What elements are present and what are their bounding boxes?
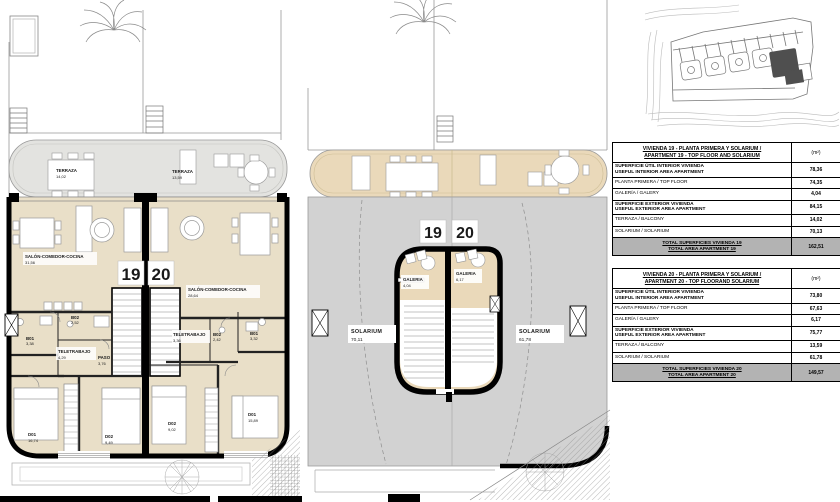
party-wall — [142, 194, 149, 458]
skylight-x-box — [5, 314, 18, 336]
svg-text:GALERIA: GALERIA — [456, 271, 477, 276]
svg-text:15,89: 15,89 — [248, 418, 259, 423]
total-label-line2: TOTAL AREA APARTMENT 19 — [668, 247, 736, 253]
room-label-terraza-19: TERRAZA — [56, 168, 78, 173]
svg-text:SOLARIUM: SOLARIUM — [351, 329, 382, 335]
area-value: 73,80 — [792, 289, 840, 303]
lower-terrace-railing — [12, 463, 250, 485]
area-table-vivienda-19: VIVIENDA 19 - PLANTA PRIMERA Y SOLARIUM … — [612, 142, 840, 256]
table-header: VIVIENDA 19 - PLANTA PRIMERA Y SOLARIUM … — [613, 143, 840, 162]
table-row: TERRAZA / BALCONY 14,02 — [613, 214, 840, 226]
svg-text:3,38: 3,38 — [26, 341, 35, 346]
plan-tree-circle — [165, 460, 199, 494]
area-value: 84,15 — [792, 201, 840, 215]
table-total-row: TOTAL SUPERFICIES VIVIENDA 20 TOTAL AREA… — [613, 363, 840, 381]
apartment-number-19: 19 — [122, 265, 141, 284]
area-value: 61,78 — [792, 353, 840, 364]
svg-text:28,64: 28,64 — [188, 293, 199, 298]
table-row: SUPERFICIE EXTERIOR VIVIENDAUSEFUL EXTER… — [613, 326, 840, 341]
area-value: 74,35 — [792, 178, 840, 189]
garden-stairs — [10, 106, 163, 133]
table-row: PLANTA PRIMERA / TOP FLOOR 74,35 — [613, 177, 840, 189]
svg-text:4,04: 4,04 — [403, 283, 412, 288]
room-area-terraza-19: 14,02 — [56, 174, 67, 179]
svg-text:9,02: 9,02 — [168, 427, 177, 432]
architectural-sheet: TERRAZA 14,02 TERRAZA 13,59 — [0, 0, 840, 502]
table-row: SUPERFICIE ÚTIL INTERIOR VIVIENDAUSEFUL … — [613, 162, 840, 177]
svg-text:16,74: 16,74 — [28, 438, 39, 443]
svg-text:TELETRABAJO: TELETRABAJO — [58, 349, 91, 354]
area-value: 6,17 — [792, 315, 840, 326]
plot-stairs — [437, 116, 453, 142]
table-row: SOLARIUM / SOLARIUM 70,13 — [613, 226, 840, 238]
total-area-value: 149,57 — [792, 364, 840, 381]
svg-text:2,42: 2,42 — [213, 337, 222, 342]
svg-text:D02: D02 — [105, 434, 114, 439]
svg-text:3,32: 3,32 — [250, 336, 259, 341]
svg-text:70,11: 70,11 — [351, 337, 363, 343]
svg-text:TELETRABAJO: TELETRABAJO — [173, 332, 206, 337]
table-row: GALERÍA / GALERY 6,17 — [613, 314, 840, 326]
table-title-line2: APARTMENT 20 - TOP FLOORAND SOLARIUM — [645, 279, 759, 285]
total-area-value: 162,51 — [792, 238, 840, 255]
terrace-band: TERRAZA 14,02 TERRAZA 13,59 — [9, 140, 287, 197]
lower-railing — [315, 470, 495, 492]
unit-header: (m²) — [792, 269, 840, 288]
area-value: 67,63 — [792, 304, 840, 315]
svg-text:D01: D01 — [28, 432, 37, 437]
table-row: SOLARIUM / SOLARIUM 61,78 — [613, 352, 840, 364]
svg-text:PASO: PASO — [98, 355, 111, 360]
svg-text:SALÓN-COMEDOR-COCINA: SALÓN-COMEDOR-COCINA — [188, 287, 247, 292]
svg-text:9,49: 9,49 — [105, 440, 114, 445]
area-value: 70,13 — [792, 227, 840, 238]
svg-text:4,29: 4,29 — [58, 355, 67, 360]
table-row: TERRAZA / BALCONY 13,59 — [613, 340, 840, 352]
plot-lines — [308, 0, 607, 150]
table-row: SUPERFICIE EXTERIOR VIVIENDAUSEFUL EXTER… — [613, 200, 840, 215]
apartment-number-19: 19 — [424, 225, 442, 242]
area-table-vivienda-20: VIVIENDA 20 - PLANTA PRIMERA Y SOLARIUM … — [612, 268, 840, 382]
site-location-plan — [645, 5, 839, 126]
svg-text:D01: D01 — [248, 412, 257, 417]
room-area-terraza-20: 13,59 — [172, 175, 183, 180]
svg-text:2,52: 2,52 — [71, 320, 80, 325]
table-title-line2: APARTMENT 19 - TOP FLOOR AND SOLARIUM — [644, 153, 760, 159]
total-label-line2: TOTAL AREA APARTMENT 20 — [668, 373, 736, 379]
svg-text:31,56: 31,56 — [25, 260, 36, 265]
unit-header: (m²) — [792, 143, 840, 162]
area-value: 75,77 — [792, 327, 840, 341]
apartment-number-20: 20 — [456, 225, 474, 242]
stair-core-enclosure: GALERIA 4,04 GALERIA 6,17 — [397, 249, 500, 402]
svg-text:SOLARIUM: SOLARIUM — [519, 329, 550, 335]
svg-text:3,36: 3,36 — [173, 338, 182, 343]
svg-text:GALERIA: GALERIA — [403, 277, 424, 282]
area-value: 4,04 — [792, 189, 840, 200]
room-label-terraza-20: TERRAZA — [172, 169, 194, 174]
svg-text:61,78: 61,78 — [519, 337, 531, 343]
table-row: GALERÍA / GALERY 4,04 — [613, 188, 840, 200]
svg-text:6,17: 6,17 — [456, 277, 465, 282]
table-total-row: TOTAL SUPERFICIES VIVIENDA 19 TOTAL AREA… — [613, 237, 840, 255]
grid-area-left — [270, 455, 300, 500]
svg-text:3,76: 3,76 — [98, 361, 107, 366]
svg-text:SALÓN-COMEDOR-COCINA: SALÓN-COMEDOR-COCINA — [25, 254, 84, 259]
apartment-number-20: 20 — [152, 265, 171, 284]
sheet-edge-walls — [0, 494, 420, 502]
area-value: 78,36 — [792, 163, 840, 177]
solarium-plan: 19 20 — [308, 0, 610, 500]
area-value: 13,59 — [792, 341, 840, 352]
svg-text:D02: D02 — [168, 421, 177, 426]
table-row: PLANTA PRIMERA / TOP FLOOR 67,63 — [613, 303, 840, 315]
terrace-band-ghost — [310, 150, 607, 198]
table-row: SUPERFICIE ÚTIL INTERIOR VIVIENDAUSEFUL … — [613, 288, 840, 303]
top-floor-plan: TERRAZA 14,02 TERRAZA 13,59 — [5, 0, 300, 500]
area-value: 14,02 — [792, 215, 840, 226]
table-header: VIVIENDA 20 - PLANTA PRIMERA Y SOLARIUM … — [613, 269, 840, 288]
